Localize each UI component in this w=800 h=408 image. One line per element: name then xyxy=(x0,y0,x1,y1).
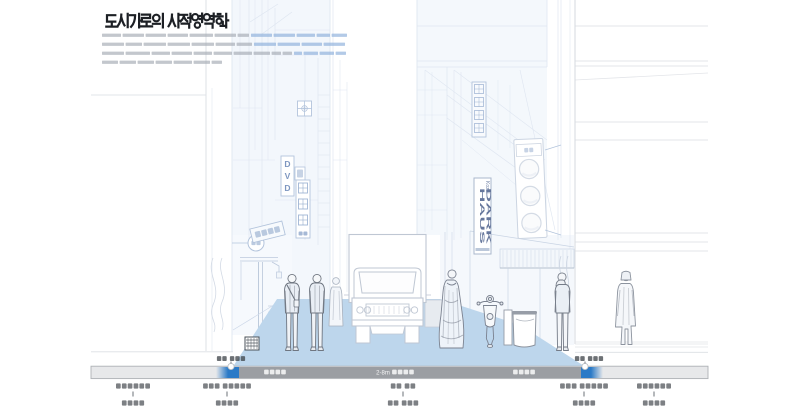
svg-text:D: D xyxy=(284,183,290,193)
svg-text:HAUS: HAUS xyxy=(478,188,485,246)
svg-text:V: V xyxy=(285,171,291,181)
svg-text:2-8m: 2-8m xyxy=(376,370,390,376)
svg-text:D: D xyxy=(284,159,290,169)
